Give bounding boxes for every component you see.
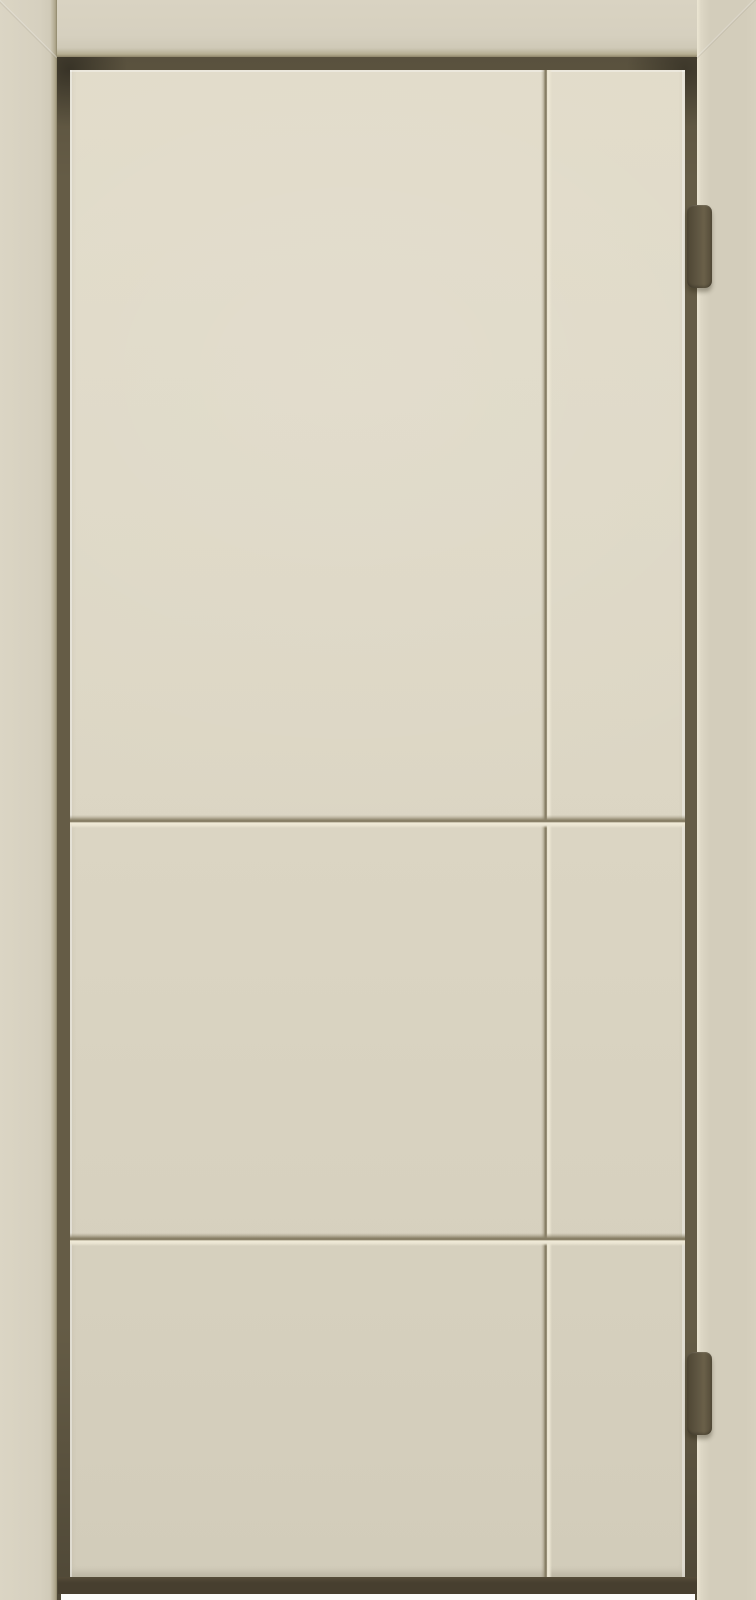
door-frame-left: [0, 0, 57, 1600]
vertical-groove: [541, 70, 552, 1577]
hinge-bottom: [687, 1352, 712, 1435]
horizontal-groove-lower: [70, 1233, 685, 1246]
door-bottom-shadow: [58, 1577, 697, 1594]
door-product-photo: [0, 0, 756, 1600]
horizontal-groove-upper: [70, 815, 685, 828]
floor-strip: [61, 1594, 695, 1600]
hinge-top: [687, 205, 712, 288]
door-frame-top: [0, 0, 756, 57]
door-leaf: [70, 70, 685, 1577]
